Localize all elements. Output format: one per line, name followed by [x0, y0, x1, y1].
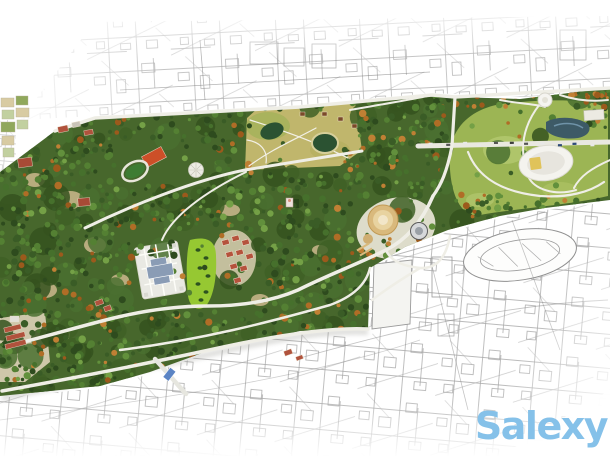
watermark-logo: Salexy — [475, 407, 607, 445]
church-building — [286, 198, 299, 208]
northeast-building — [584, 109, 605, 120]
left-fade — [14, 18, 164, 130]
circus-building — [189, 163, 204, 178]
park-masterplan-photo: Salexy — [0, 0, 610, 456]
